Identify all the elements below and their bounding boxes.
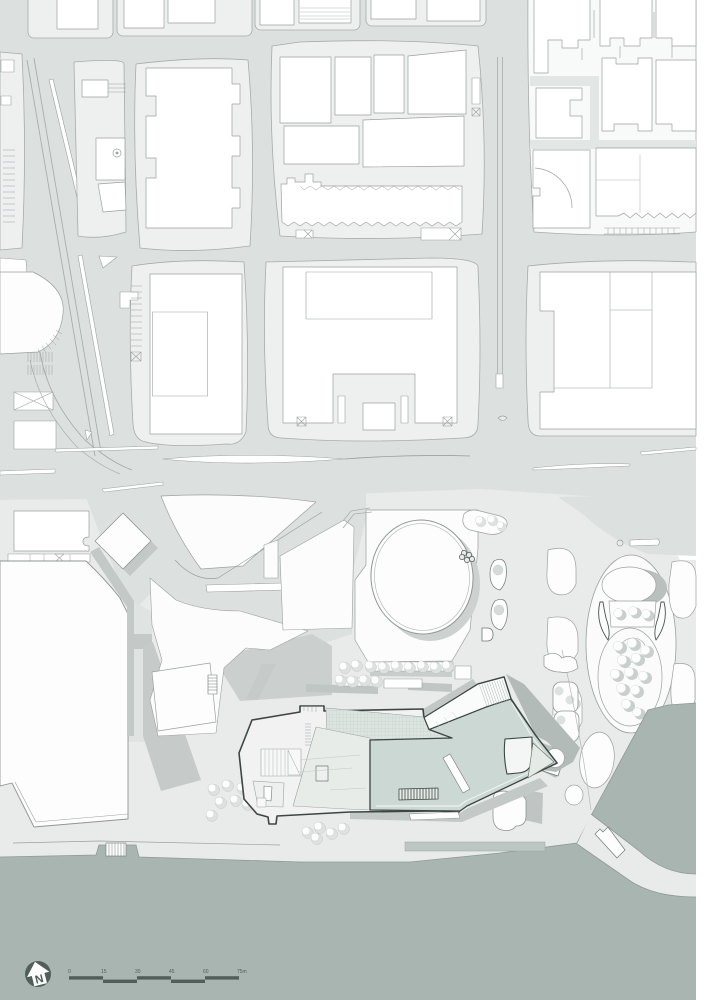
svg-text:0: 0 xyxy=(68,969,71,975)
svg-text:75m: 75m xyxy=(237,969,247,975)
svg-text:30: 30 xyxy=(135,969,141,975)
svg-text:60: 60 xyxy=(203,969,209,975)
svg-text:15: 15 xyxy=(101,969,107,975)
svg-text:45: 45 xyxy=(169,969,175,975)
